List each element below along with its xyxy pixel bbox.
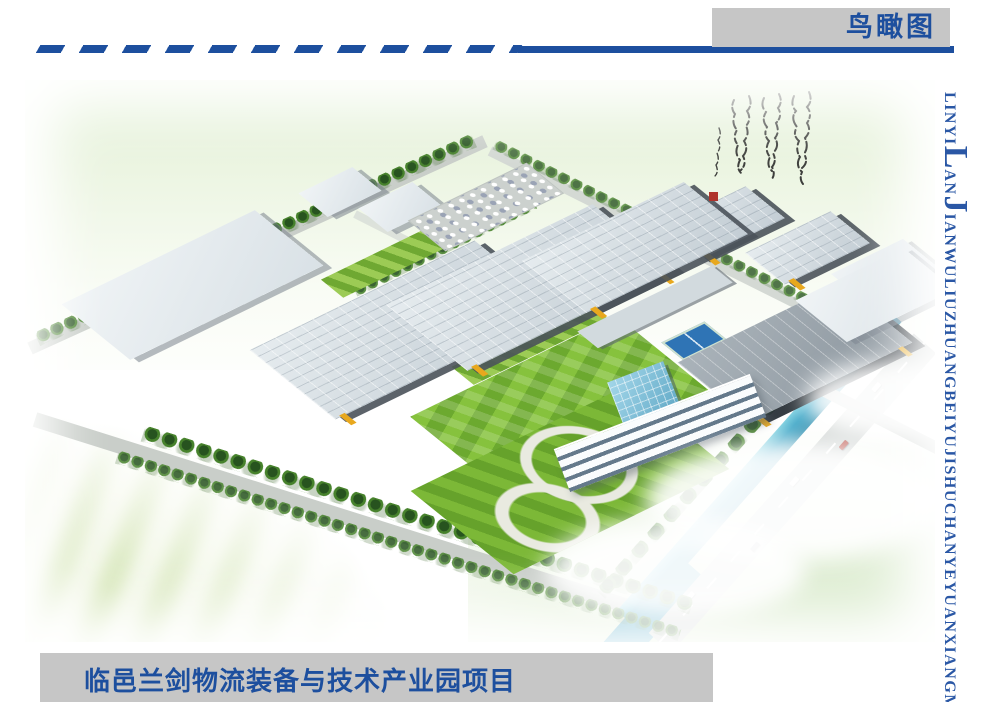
header-title-box: 鸟瞰图 — [712, 8, 950, 47]
calligraphy-block — [693, 88, 821, 226]
side-label-part: AN — [941, 169, 958, 195]
aerial-rendering — [25, 80, 935, 642]
header-solid-line — [518, 46, 954, 53]
calligraphy-strokes — [693, 88, 821, 226]
side-label-part: IANWULIUZHUANGBEIYUJISHUCHANYEYUANXIANGM… — [941, 214, 958, 702]
side-label-initial-j: J — [937, 196, 974, 214]
footer-band: 临邑兰剑物流装备与技术产业园项目 — [40, 653, 713, 702]
header-dashed-line — [36, 45, 523, 53]
presentation-page: 鸟瞰图 LINYILANJIANWULIUZHUANGBEIYUJISHUCHA… — [0, 0, 992, 702]
project-name-vertical: LINYILANJIANWULIUZHUANGBEIYUJISHUCHANYEY… — [936, 92, 974, 652]
mist-cloud — [545, 520, 805, 620]
calligraphy-seal — [709, 192, 718, 201]
side-label-part: LINYI — [941, 92, 958, 146]
page-title: 鸟瞰图 — [846, 8, 936, 47]
project-title: 临邑兰剑物流装备与技术产业园项目 — [84, 661, 516, 698]
side-label-initial-l: L — [937, 146, 974, 170]
